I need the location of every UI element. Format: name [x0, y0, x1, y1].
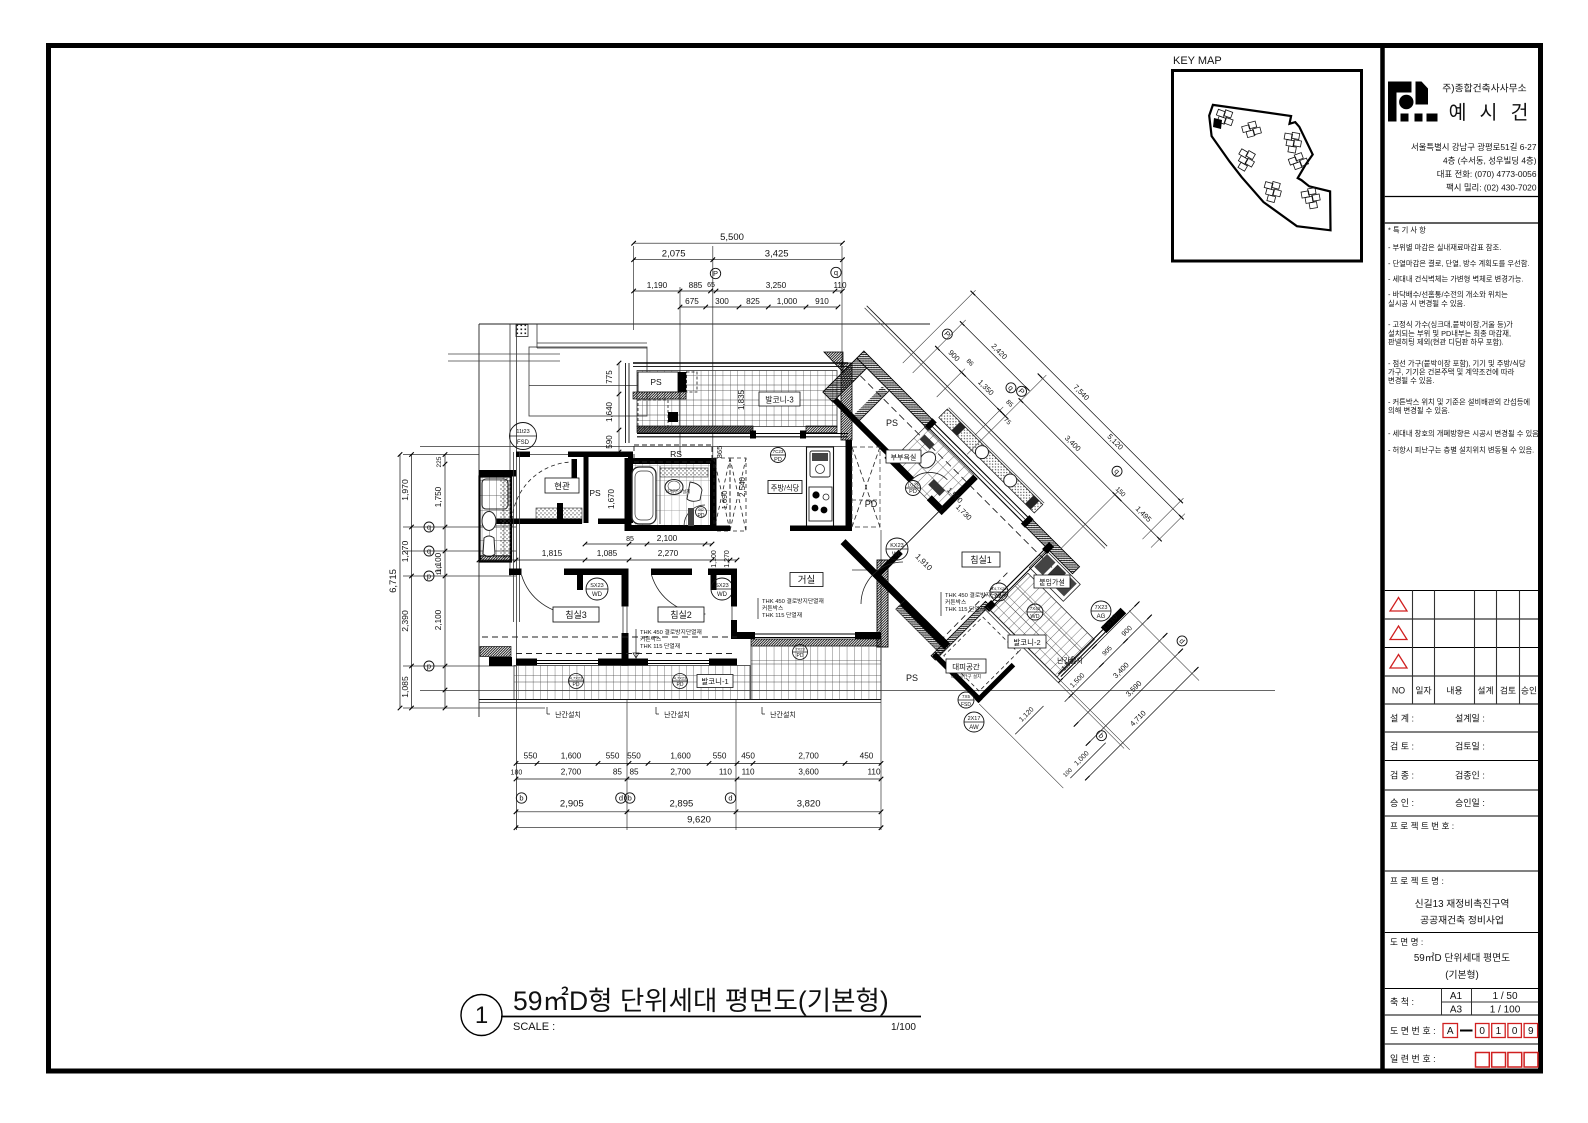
svg-text:1: 1 — [475, 1002, 488, 1029]
svg-text:승인: 승인 — [1521, 686, 1537, 696]
svg-text:100: 100 — [1063, 767, 1075, 779]
svg-text:1,000: 1,000 — [1073, 750, 1090, 767]
svg-text:THK 115 단열재: THK 115 단열재 — [640, 642, 680, 650]
svg-text:부부욕실: 부부욕실 — [891, 453, 917, 462]
svg-text:PS: PS — [589, 488, 601, 498]
svg-text:1,690: 1,690 — [720, 491, 729, 510]
svg-text:침실2: 침실2 — [670, 610, 692, 620]
svg-text:난간설치: 난간설치 — [1057, 656, 1083, 665]
svg-text:THK 450 결로방지단열재: THK 450 결로방지단열재 — [640, 628, 702, 636]
svg-text:150: 150 — [1114, 486, 1127, 499]
svg-text:5,120: 5,120 — [1105, 432, 1125, 452]
svg-text:1,085: 1,085 — [400, 676, 410, 698]
svg-text:발코니-3: 발코니-3 — [765, 395, 793, 405]
svg-text:3,425: 3,425 — [765, 249, 789, 260]
svg-text:3,400: 3,400 — [1063, 433, 1083, 453]
svg-text:침실1: 침실1 — [970, 555, 992, 565]
svg-text:65: 65 — [707, 282, 715, 289]
svg-text:2,700: 2,700 — [798, 752, 819, 761]
svg-text:침실3: 침실3 — [565, 610, 587, 620]
svg-text:2,905: 2,905 — [560, 799, 584, 810]
svg-text:1/100: 1/100 — [891, 1022, 916, 1033]
svg-text:A3: A3 — [1450, 1005, 1463, 1016]
svg-text:내지공간구 설치: 내지공간구 설치 — [951, 673, 981, 680]
svg-text:3,820: 3,820 — [797, 799, 821, 810]
svg-text:6,715: 6,715 — [388, 569, 399, 593]
svg-text:p: p — [427, 572, 431, 581]
svg-text:PD: PD — [677, 682, 684, 688]
svg-text:현관: 현관 — [554, 481, 570, 491]
svg-text:난간설치: 난간설치 — [555, 710, 581, 719]
svg-text:2,700: 2,700 — [670, 768, 691, 777]
svg-text:PS: PS — [906, 673, 918, 683]
svg-text:900: 900 — [1121, 625, 1134, 638]
svg-text:WD: WD — [717, 592, 728, 598]
svg-text:2,270: 2,270 — [658, 549, 679, 558]
svg-text:q: q — [427, 523, 431, 532]
svg-text:거실: 거실 — [798, 575, 815, 586]
svg-text:1,835: 1,835 — [737, 389, 746, 410]
svg-text:550: 550 — [627, 752, 641, 761]
svg-text:675: 675 — [685, 297, 699, 306]
svg-text:주)종합건축사사무소: 주)종합건축사사무소 — [1442, 83, 1526, 95]
svg-text:775: 775 — [605, 370, 614, 384]
svg-text:THK 115 단열재: THK 115 단열재 — [762, 611, 802, 619]
svg-text:PD: PD — [774, 457, 782, 463]
svg-text:설계: 설계 — [1477, 685, 1493, 696]
svg-text:85: 85 — [1004, 399, 1014, 409]
svg-text:KEY MAP: KEY MAP — [1173, 55, 1222, 67]
svg-text:- 세대내 창호의 개폐방향은 시공시 변경될 수 있음: - 세대내 창호의 개폐방향은 시공시 변경될 수 있음 — [1388, 429, 1539, 438]
svg-text:0: 0 — [1479, 1026, 1485, 1037]
svg-text:900: 900 — [946, 348, 961, 363]
svg-text:110: 110 — [867, 768, 880, 777]
svg-text:PD: PD — [797, 653, 804, 659]
svg-text:1,000: 1,000 — [777, 297, 798, 306]
svg-text:의해 변경될 수 있음.: 의해 변경될 수 있음. — [1388, 406, 1450, 415]
svg-text:THK 115 단열재: THK 115 단열재 — [945, 605, 985, 613]
svg-text:1,495: 1,495 — [1134, 504, 1154, 524]
svg-text:3,400: 3,400 — [1111, 660, 1131, 680]
svg-text:14,7X23: 14,7X23 — [992, 586, 1008, 591]
svg-text:- 바닥배수/선홈통/수전의 개소와 위치는: - 바닥배수/선홈통/수전의 개소와 위치는 — [1388, 290, 1508, 299]
svg-text:590: 590 — [605, 435, 614, 449]
svg-text:검종인 :: 검종인 : — [1455, 770, 1485, 781]
svg-text:2,895: 2,895 — [670, 799, 694, 810]
svg-text:885: 885 — [689, 281, 703, 290]
svg-text:1 / 50: 1 / 50 — [1492, 991, 1517, 1002]
svg-text:7X41: 7X41 — [1030, 606, 1041, 611]
svg-text:2,390: 2,390 — [400, 610, 410, 632]
svg-text:7X23: 7X23 — [1095, 605, 1108, 611]
svg-text:THK 450 결로방지단열재: THK 450 결로방지단열재 — [762, 597, 824, 605]
svg-text:PD: PD — [909, 489, 917, 495]
svg-text:WD: WD — [892, 552, 903, 558]
svg-text:5,500: 5,500 — [720, 232, 744, 243]
svg-text:550: 550 — [606, 752, 620, 761]
svg-text:7,540: 7,540 — [1071, 383, 1091, 403]
svg-text:설 계 :: 설 계 : — [1390, 713, 1414, 724]
svg-text:공공재건축 정비사업: 공공재건축 정비사업 — [1420, 914, 1504, 927]
svg-text:180: 180 — [511, 770, 523, 777]
svg-text:프 로 젝 트 번 호 :: 프 로 젝 트 번 호 : — [1390, 821, 1454, 831]
svg-text:1,350: 1,350 — [976, 378, 996, 398]
svg-text:검 토 :: 검 토 : — [1390, 741, 1414, 752]
svg-text:4층 (수서동, 성우빌딩 4층): 4층 (수서동, 성우빌딩 4층) — [1443, 156, 1537, 166]
svg-text:q: q — [834, 268, 838, 277]
svg-text:KX23: KX23 — [890, 543, 903, 549]
svg-text:AG: AG — [1097, 614, 1106, 620]
svg-text:0: 0 — [1512, 1026, 1518, 1037]
svg-text:PS: PS — [886, 418, 898, 428]
svg-text:110: 110 — [719, 768, 732, 777]
svg-text:1,640: 1,640 — [605, 401, 614, 422]
svg-text:커튼박스: 커튼박스 — [640, 635, 662, 643]
svg-text:승인일 :: 승인일 : — [1455, 798, 1485, 808]
svg-text:110: 110 — [436, 564, 443, 575]
svg-text:1,600: 1,600 — [670, 752, 691, 761]
svg-text:2,100: 2,100 — [657, 534, 678, 543]
svg-text:발코니-1: 발코니-1 — [701, 677, 728, 686]
svg-text:신길13 재정비촉진구역: 신길13 재정비촉진구역 — [1415, 897, 1510, 910]
svg-text:발코니-2: 발코니-2 — [1013, 638, 1040, 647]
svg-text:300: 300 — [715, 297, 729, 306]
svg-text:7X23: 7X23 — [795, 647, 805, 652]
svg-text:2,420: 2,420 — [989, 342, 1009, 362]
svg-text:FSD: FSD — [517, 440, 530, 446]
svg-text:1,270: 1,270 — [724, 550, 731, 568]
svg-text:난간설치: 난간설치 — [770, 710, 796, 719]
svg-text:d: d — [728, 794, 732, 803]
svg-text:59㎡D 단위세대 평면도: 59㎡D 단위세대 평면도 — [1414, 951, 1510, 964]
svg-text:승 인 :: 승 인 : — [1390, 798, 1414, 808]
svg-text:1,730: 1,730 — [954, 502, 974, 522]
svg-text:1,270: 1,270 — [400, 541, 410, 563]
svg-text:- 단열마감은 결로, 단열, 방수 계획도를 우선함.: - 단열마감은 결로, 단열, 방수 계획도를 우선함. — [1388, 259, 1530, 268]
svg-text:4,7X23: 4,7X23 — [570, 676, 583, 681]
svg-text:A1: A1 — [1450, 991, 1463, 1002]
svg-text:85: 85 — [613, 768, 623, 777]
svg-text:설계일 :: 설계일 : — [1455, 713, 1485, 724]
svg-text:도 면 번 호 :: 도 면 번 호 : — [1390, 1026, 1436, 1036]
svg-text:프 로 젝 트 명 :: 프 로 젝 트 명 : — [1390, 876, 1444, 886]
svg-text:b: b — [519, 794, 523, 803]
svg-text:9,620: 9,620 — [687, 815, 711, 826]
svg-text:SCALE :: SCALE : — [513, 1021, 555, 1033]
svg-text:일자: 일자 — [1415, 686, 1431, 696]
svg-text:q: q — [427, 547, 431, 556]
svg-text:팩시 밀리: (02) 430-7020: 팩시 밀리: (02) 430-7020 — [1446, 183, 1537, 193]
svg-text:PD: PD — [865, 499, 878, 509]
svg-text:825: 825 — [746, 297, 760, 306]
svg-text:검토일 :: 검토일 : — [1455, 741, 1485, 752]
svg-text:865: 865 — [715, 446, 724, 459]
svg-text:일 련 번 호 :: 일 련 번 호 : — [1390, 1054, 1436, 1064]
svg-text:2,700: 2,700 — [561, 768, 582, 777]
svg-text:4,710: 4,710 — [1128, 709, 1148, 729]
svg-text:대표 전화: (070) 4773-0056: 대표 전화: (070) 4773-0056 — [1437, 169, 1537, 179]
svg-text:1G23: 1G23 — [907, 483, 919, 488]
svg-text:검 종 :: 검 종 : — [1390, 770, 1414, 781]
svg-text:PD: PD — [573, 682, 580, 688]
svg-text:1,190: 1,190 — [647, 281, 668, 290]
svg-text:대피공간: 대피공간 — [952, 662, 980, 672]
svg-text:1,100: 1,100 — [711, 550, 718, 568]
svg-text:11t23: 11t23 — [516, 429, 529, 435]
svg-text:550: 550 — [713, 752, 727, 761]
svg-text:1: 1 — [1496, 1026, 1502, 1037]
svg-text:1,750: 1,750 — [434, 486, 443, 507]
svg-text:WD: WD — [592, 592, 603, 598]
svg-text:1,600: 1,600 — [561, 752, 582, 761]
svg-text:2,540: 2,540 — [738, 476, 747, 497]
svg-text:1 / 100: 1 / 100 — [1490, 1005, 1521, 1016]
svg-text:85: 85 — [626, 536, 634, 543]
svg-text:AW: AW — [969, 725, 979, 731]
svg-text:- 부위별 마감은 실내재료마감표 참조.: - 부위별 마감은 실내재료마감표 참조. — [1388, 243, 1501, 252]
svg-text:1,970: 1,970 — [400, 479, 410, 501]
svg-text:검토: 검토 — [1500, 685, 1516, 696]
svg-text:도 면 명 :: 도 면 명 : — [1390, 937, 1423, 947]
svg-text:450: 450 — [860, 752, 874, 761]
svg-text:1,085: 1,085 — [597, 549, 618, 558]
svg-text:110: 110 — [833, 281, 846, 290]
svg-text:PD: PD — [698, 513, 705, 519]
svg-text:* 특 기 사 항: * 특 기 사 항 — [1388, 226, 1426, 235]
svg-text:3,590: 3,590 — [1124, 679, 1144, 699]
svg-text:110: 110 — [742, 768, 755, 777]
svg-text:판넬히팅 제외(현관 디딤판 하무 포함).: 판넬히팅 제외(현관 디딤판 하무 포함). — [1388, 338, 1504, 347]
svg-text:난간설치: 난간설치 — [664, 710, 690, 719]
svg-text:225: 225 — [436, 456, 443, 467]
svg-text:변경될 수 있음.: 변경될 수 있음. — [1388, 376, 1434, 385]
svg-text:59㎡D형 단위세대 평면도(기본형): 59㎡D형 단위세대 평면도(기본형) — [513, 986, 889, 1016]
svg-text:(기본형): (기본형) — [1445, 969, 1479, 981]
svg-text:9: 9 — [1528, 1026, 1534, 1037]
svg-text:서울특별시 강남구 광평로51길 6-27: 서울특별시 강남구 광평로51길 6-27 — [1411, 142, 1537, 152]
svg-text:1,670: 1,670 — [607, 488, 616, 509]
svg-text:AW: AW — [995, 594, 1004, 600]
svg-text:2,075: 2,075 — [662, 249, 686, 260]
svg-text:WD: WD — [1030, 614, 1039, 620]
svg-text:p: p — [427, 662, 431, 671]
svg-text:1,815: 1,815 — [542, 549, 563, 558]
svg-text:7X5: 7X5 — [962, 694, 971, 699]
svg-text:910: 910 — [815, 297, 829, 306]
svg-text:P: P — [713, 269, 718, 278]
svg-text:커튼박스: 커튼박스 — [762, 604, 784, 612]
svg-text:- 고정식 가수(싱크대,붙박이장,거울 등)가: - 고정식 가수(싱크대,붙박이장,거울 등)가 — [1388, 320, 1513, 329]
svg-text:- 허항시 피난구는 층별 설치위치 변동될 수 있음.: - 허항시 피난구는 층별 설치위치 변동될 수 있음. — [1388, 446, 1534, 455]
svg-text:RS: RS — [670, 449, 682, 459]
svg-text:축 척 :: 축 척 : — [1390, 997, 1414, 1007]
svg-text:85: 85 — [629, 768, 639, 777]
svg-text:86: 86 — [965, 358, 975, 368]
svg-text:- 세대내 건식벽체는 가변형 벽체로 변경가능.: - 세대내 건식벽체는 가변형 벽체로 변경가능. — [1388, 275, 1523, 284]
svg-text:1,120: 1,120 — [1018, 706, 1035, 723]
svg-text:NO: NO — [1392, 686, 1405, 696]
svg-text:450: 450 — [741, 752, 755, 761]
svg-text:붙임가설: 붙임가설 — [1039, 578, 1065, 587]
svg-text:7C23: 7C23 — [773, 449, 784, 454]
svg-text:4,7X23: 4,7X23 — [674, 676, 687, 681]
svg-text:550: 550 — [524, 752, 538, 761]
svg-text:2,100: 2,100 — [434, 609, 443, 630]
svg-text:b: b — [628, 794, 632, 803]
svg-text:PS: PS — [650, 377, 662, 387]
svg-text:905: 905 — [1101, 645, 1114, 658]
svg-text:1,500: 1,500 — [1069, 672, 1086, 689]
svg-text:A: A — [1447, 1026, 1454, 1037]
svg-text:6t2: 6t2 — [698, 507, 704, 512]
svg-text:2X17: 2X17 — [968, 716, 981, 722]
svg-text:사워부스설치: 사워부스설치 — [666, 488, 691, 495]
svg-text:3,600: 3,600 — [798, 768, 819, 777]
svg-text:예시건: 예시건 — [1449, 102, 1542, 124]
svg-text:SX23: SX23 — [715, 583, 728, 589]
svg-text:FSD: FSD — [961, 702, 971, 708]
svg-text:내용: 내용 — [1446, 686, 1462, 696]
svg-text:1,910: 1,910 — [914, 552, 935, 573]
svg-text:d: d — [619, 794, 623, 803]
svg-text:실시공 시 변경될 수 있음.: 실시공 시 변경될 수 있음. — [1388, 299, 1465, 308]
svg-text:주방/식당: 주방/식당 — [771, 484, 800, 493]
svg-text:커튼박스: 커튼박스 — [945, 598, 967, 606]
svg-text:3,250: 3,250 — [766, 281, 787, 290]
svg-text:SX23: SX23 — [590, 583, 603, 589]
